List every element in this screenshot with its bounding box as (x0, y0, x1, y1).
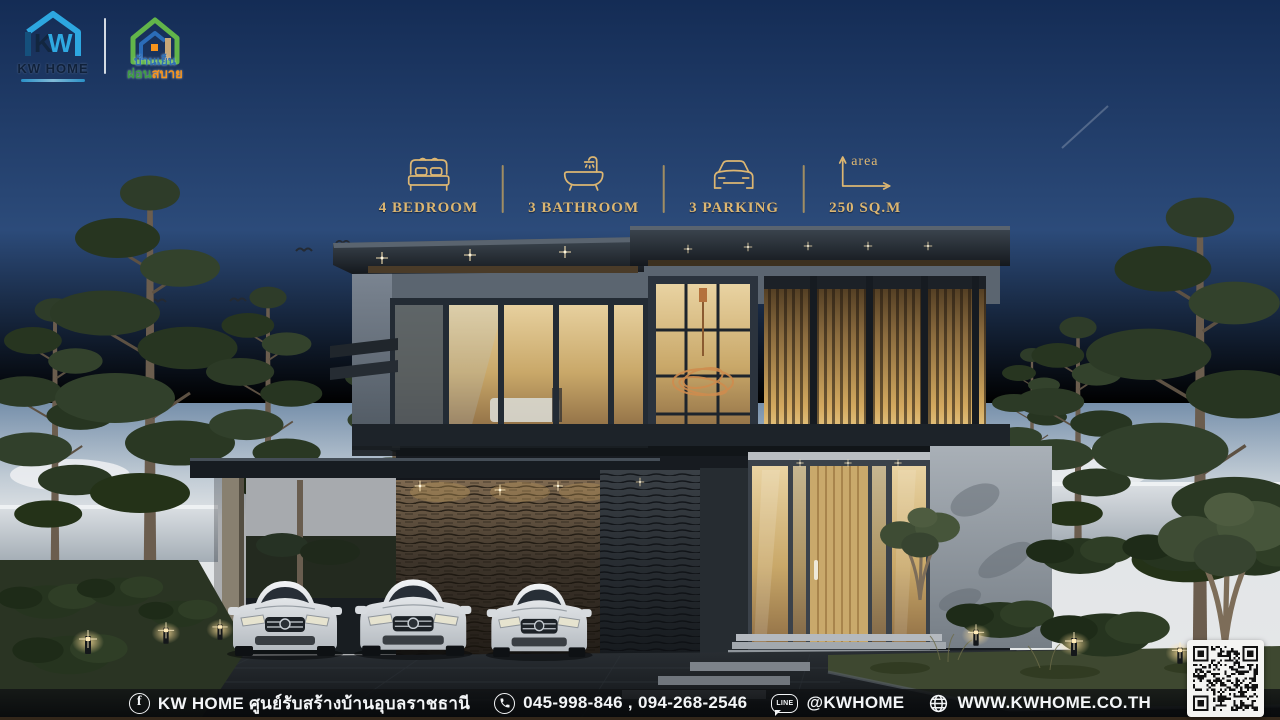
kw-home-wordmark: KW HOME (17, 61, 88, 76)
poster-title: MODERN HOUSE 23 (0, 26, 1280, 80)
poster: K W KW HOME บ้านเย็น ผ่อนสบาย MODERN HOU… (0, 0, 1280, 720)
brand-header: K W KW HOME บ้านเย็น ผ่อนสบาย (14, 10, 192, 82)
kw-home-logo: K W KW HOME (14, 10, 92, 82)
contact-bar: f KW HOME ศูนย์รับสร้างบ้านอุบลราชธานี 0… (0, 689, 1280, 720)
feature-parking: 3 PARKING (689, 150, 779, 217)
headline-block: MODERN HOUSE 23 4,750,000 - 4,950,000 TH… (0, 26, 1280, 121)
website-url: WWW.KWHOME.CO.TH (957, 693, 1151, 713)
area-icon: area (837, 150, 893, 194)
line-icon: LINE (771, 694, 798, 713)
parked-cars (227, 579, 593, 661)
partner-logo: บ้านเย็น ผ่อนสบาย (118, 14, 192, 80)
feature-row: 4 BEDROOM 3 BATHROOM (379, 150, 902, 217)
feature-divider (663, 165, 665, 213)
website-contact: WWW.KWHOME.CO.TH (928, 693, 1151, 714)
phone-numbers: 045-998-846 , 094-268-2546 (523, 693, 747, 713)
bathtub-icon (561, 150, 607, 194)
area-icon-caption: area (851, 154, 878, 170)
phone-icon (494, 693, 515, 714)
feature-bedroom-label: 4 BEDROOM (379, 200, 478, 217)
globe-icon (928, 693, 949, 714)
car-icon (709, 150, 759, 194)
partner-logo-line2: ผ่อนสบาย (127, 67, 182, 80)
bed-icon (405, 150, 451, 194)
feature-bathroom-label: 3 BATHROOM (528, 200, 639, 217)
facebook-contact: f KW HOME ศูนย์รับสร้างบ้านอุบลราชธานี (129, 690, 470, 717)
feature-divider (803, 165, 805, 213)
kw-home-tagline-line (21, 79, 85, 82)
line-id: @KWHOME (806, 693, 904, 713)
svg-text:W: W (48, 28, 73, 58)
phone-contact: 045-998-846 , 094-268-2546 (494, 693, 747, 714)
feature-bathroom: 3 BATHROOM (528, 150, 639, 217)
feature-area-label: 250 SQ.M (829, 200, 901, 217)
poster-price: 4,750,000 - 4,950,000 THB (0, 90, 1280, 121)
brand-divider (104, 18, 106, 74)
feature-bedroom: 4 BEDROOM (379, 150, 478, 217)
kw-home-house-icon: K W (22, 10, 84, 60)
feature-parking-label: 3 PARKING (689, 200, 779, 217)
qr-code (1187, 640, 1264, 717)
facebook-text: KW HOME ศูนย์รับสร้างบ้านอุบลราชธานี (158, 690, 470, 717)
facebook-icon: f (129, 693, 150, 714)
feature-divider (502, 165, 504, 213)
feature-area: area 250 SQ.M (829, 150, 901, 217)
line-contact: LINE @KWHOME (771, 693, 904, 713)
